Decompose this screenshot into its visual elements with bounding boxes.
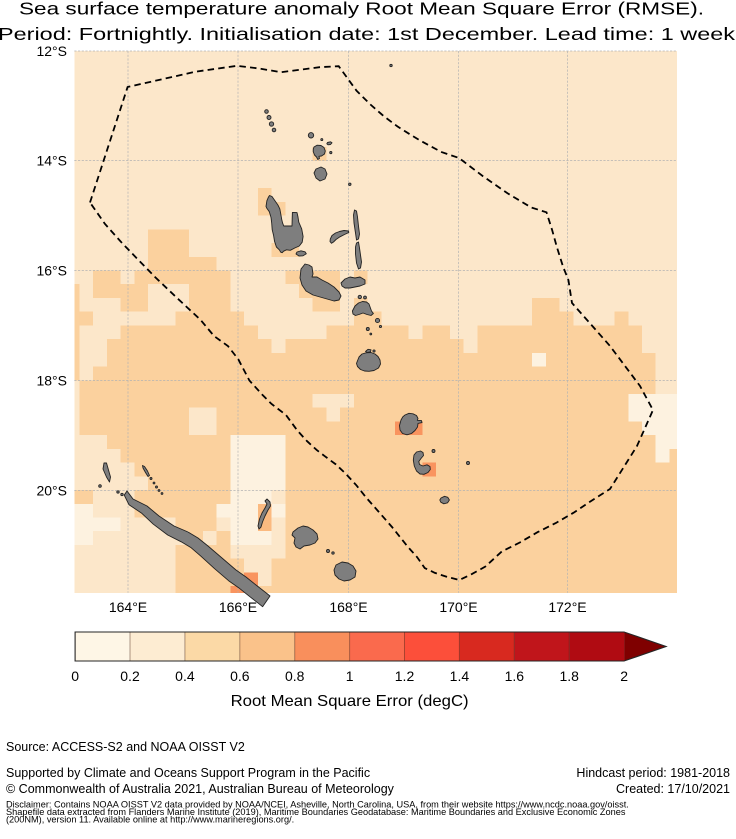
svg-text:Supported by Climate and Ocean: Supported by Climate and Oceans Support … [6,766,370,780]
svg-text:0.4: 0.4 [175,668,195,684]
svg-text:0: 0 [71,668,79,684]
svg-text:164°E: 164°E [109,599,147,615]
svg-text:16°S: 16°S [36,263,67,279]
svg-text:20°S: 20°S [36,483,67,499]
svg-text:Created: 17/10/2021: Created: 17/10/2021 [616,782,730,796]
svg-text:Sea surface temperature anomal: Sea surface temperature anomaly Root Mea… [19,0,704,19]
svg-text:Root Mean Square Error (degC): Root Mean Square Error (degC) [231,693,469,710]
svg-text:Period: Fortnightly. Initialis: Period: Fortnightly. Initialisation date… [0,24,735,44]
svg-text:1: 1 [346,668,354,684]
svg-text:(200NM), version 11. Available: (200NM), version 11. Available online at… [6,815,294,825]
svg-text:1.2: 1.2 [395,668,415,684]
svg-text:12°S: 12°S [36,43,67,59]
svg-text:0.2: 0.2 [120,668,140,684]
svg-text:14°S: 14°S [36,153,67,169]
svg-text:Source: ACCESS-S2 and NOAA OIS: Source: ACCESS-S2 and NOAA OISST V2 [6,740,245,754]
svg-text:0.6: 0.6 [230,668,250,684]
svg-text:1.6: 1.6 [505,668,525,684]
svg-text:1.4: 1.4 [450,668,470,684]
svg-text:2: 2 [620,668,628,684]
svg-text:172°E: 172°E [548,599,586,615]
svg-text:0.8: 0.8 [285,668,305,684]
svg-text:© Commonwealth of Australia 20: © Commonwealth of Australia 2021, Austra… [6,782,395,796]
svg-text:18°S: 18°S [36,373,67,389]
svg-text:166°E: 166°E [219,599,257,615]
svg-text:1.8: 1.8 [559,668,579,684]
svg-text:170°E: 170°E [439,599,477,615]
svg-text:Hindcast period: 1981-2018: Hindcast period: 1981-2018 [576,766,730,780]
svg-text:168°E: 168°E [329,599,367,615]
